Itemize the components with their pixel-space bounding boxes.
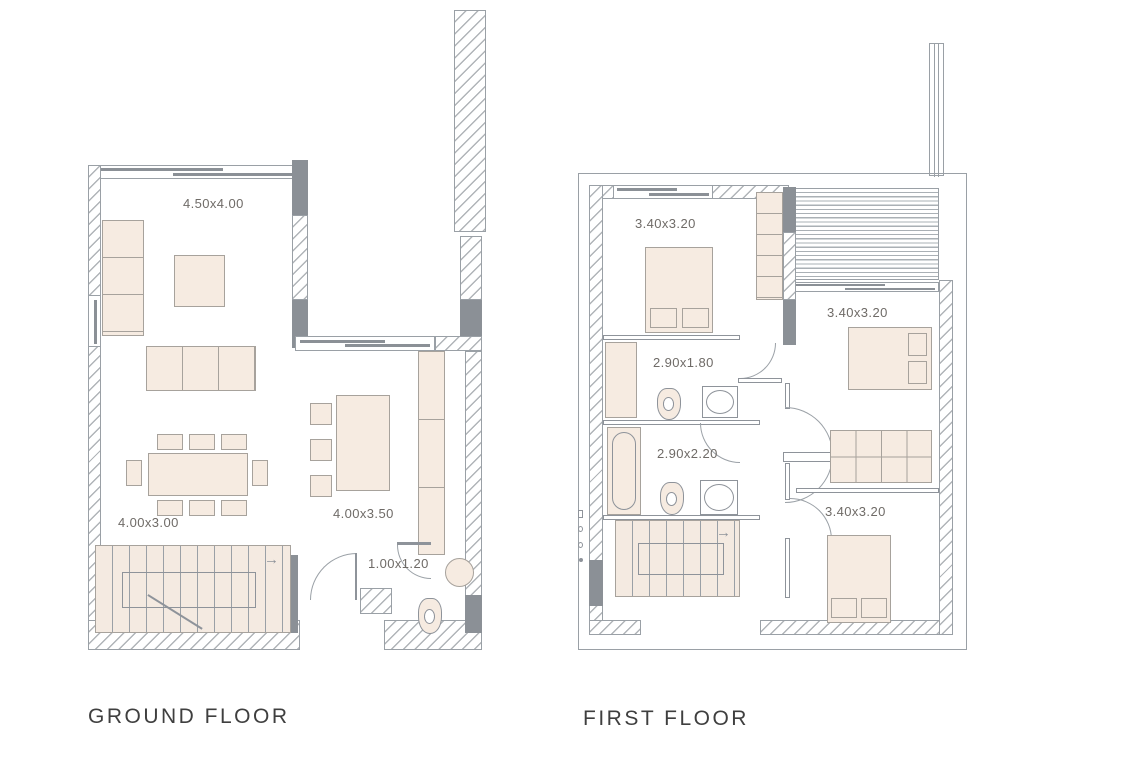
courtyard-right-wall [460,236,482,300]
pillow [861,598,887,618]
chimney-flue-wall [454,10,486,232]
kitchen-dimensions: 4.00x3.50 [333,506,394,521]
shower-bathroom1 [605,342,637,418]
pillow [908,333,927,356]
window-pane [94,300,97,344]
wardrobe-bedroom1 [756,192,783,300]
wardrobe-wall-block-top [783,187,796,232]
toilet-bowl [666,492,677,506]
living-room-dimensions: 4.50x4.00 [183,196,244,211]
wc-sink [445,558,474,587]
bathroom1-door-leaf [738,378,782,383]
chimney-inner-line [934,44,939,177]
window-pane [795,284,885,286]
bathroom1-dimensions: 2.90x1.80 [653,355,714,370]
sofa-horizontal [146,346,256,391]
kitchen-island [336,395,390,491]
bathroom2-dimensions: 2.90x2.20 [657,446,718,461]
floor-plan-canvas: → 4.50x4.00 4.00x3.00 4.00x3.50 1.00x1.2… [0,0,1138,764]
terrace-sliding-door [791,282,939,292]
stairs-handrail [122,572,256,608]
stairs-handrail [638,543,724,575]
wc-door-leaf [397,542,431,545]
kitchen-top-wall-end [435,336,482,351]
kitchen-counter [418,351,445,555]
dining-chair [157,434,183,450]
stairs-direction-arrow: → [264,552,279,567]
window-pane [93,168,223,171]
kitchen-top-window-wall [295,336,435,351]
bathroom1-top-wall [603,335,740,340]
ground-floor-plan: → 4.50x4.00 4.00x3.00 4.00x3.50 1.00x1.2… [88,10,488,760]
hall-wall-segment [785,538,790,598]
sink-basin [706,390,734,414]
toilet-bathroom1 [657,388,681,420]
bathtub [607,427,641,515]
left-wall-block [589,560,603,606]
stairs-first: → [615,520,740,597]
first-floor-title: FIRST FLOOR [583,707,749,731]
living-corner-block [292,160,308,215]
utility-symbol [578,526,583,532]
window-pane [300,340,385,343]
wc-toilet [418,598,442,634]
sofa-vertical [102,220,144,336]
window-pane [173,173,303,176]
dining-chair [221,434,247,450]
terrace-pergola [791,188,939,280]
bed-bedroom3 [827,535,891,623]
bottom-left-wall [589,620,641,635]
wc-right-wall-block [465,595,482,633]
bar-stool [310,403,332,425]
bedroom1-window [613,185,713,199]
dining-chair [189,500,215,516]
wardrobe-wall-block-bottom [783,300,796,345]
utility-symbol [578,542,583,548]
dining-chair [189,434,215,450]
living-top-window-wall [88,165,308,179]
pillow [908,361,927,384]
dining-area-dimensions: 4.00x3.00 [118,515,179,530]
window-pane [617,188,677,191]
toilet-bathroom2 [660,482,684,515]
window-pane [845,288,935,290]
utility-symbol [579,558,583,562]
bedroom3-dimensions: 3.40x3.20 [825,504,886,519]
bed-bedroom2 [848,327,932,390]
pillow [650,308,677,328]
dining-chair [126,460,142,486]
entry-wc-divider-wall [360,588,392,614]
hall-wall-segment [785,383,790,409]
wardrobe-bedroom2 [830,430,932,483]
wc-dimensions: 1.00x1.20 [368,556,429,571]
bedroom2-dimensions: 3.40x3.20 [827,305,888,320]
sink-bathroom2 [700,480,738,515]
chimney-stack [929,43,944,176]
sink-bathroom1 [702,386,738,418]
dining-table [148,453,248,496]
bathtub-inner [612,432,636,510]
entrance-door-leaf [355,553,357,600]
stairs-ground: → [95,545,291,633]
toilet-bowl [424,609,435,625]
coffee-table [174,255,225,307]
bedroom2-door-leaf [783,452,837,462]
utility-symbol [578,510,583,518]
bed-bedroom1 [645,247,713,333]
right-exterior-wall [939,280,953,635]
bedroom1-dimensions: 3.40x3.20 [635,216,696,231]
dining-chair [252,460,268,486]
sink-basin [704,484,734,511]
pillow [831,598,857,618]
ground-floor-title: GROUND FLOOR [88,705,290,729]
bedroom2-bedroom3-wall [796,488,939,493]
dining-chair [221,500,247,516]
entrance-door-arc [310,553,357,600]
bar-stool [310,475,332,497]
window-pane [345,344,430,347]
window-pane [649,193,709,196]
first-floor-plan: → 3.40x3.20 2.90x1.80 3. [575,40,975,740]
entry-wall-post [291,555,298,633]
living-right-wall [292,215,308,300]
dining-chair [157,500,183,516]
wardrobe-wall-hatch [783,232,796,300]
left-wall-window [88,295,101,347]
stairs-direction-arrow: → [716,525,731,540]
bar-stool [310,439,332,461]
pillow [682,308,709,328]
toilet-bowl [663,397,674,411]
